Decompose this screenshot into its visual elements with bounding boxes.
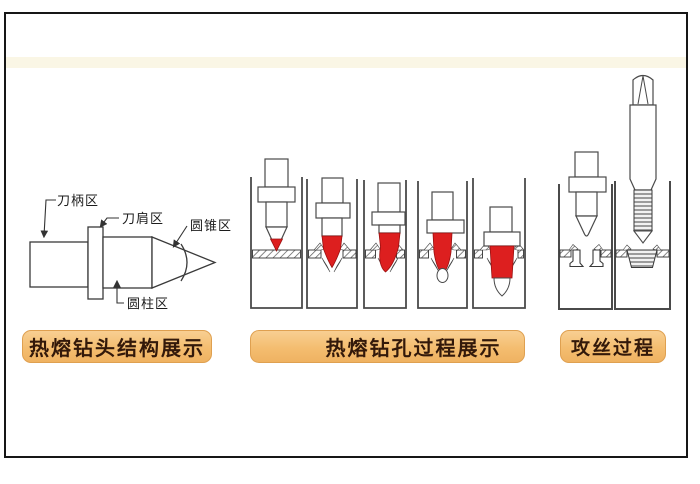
tap1-bushing-lips — [569, 245, 603, 251]
tap2-bushing-lips — [623, 245, 661, 250]
tap2-tap-tool — [630, 76, 656, 244]
tap1-plate-left — [560, 250, 571, 257]
drilling-stage-5 — [473, 178, 525, 308]
stage5-hot-body — [490, 246, 514, 278]
drilling-stage-3 — [364, 180, 406, 308]
stage3-hot-cone — [379, 233, 400, 272]
tap1-plate-right — [601, 250, 611, 257]
stage4-plate-right — [457, 250, 466, 258]
stage3-plate-left — [366, 250, 376, 258]
tap-head — [633, 76, 653, 106]
stage4-drill — [427, 192, 464, 233]
stage4-plate-left — [420, 250, 429, 258]
callout-line-shoulder — [101, 218, 119, 226]
caption-drilling-process: 热熔钻孔过程展示 — [250, 330, 525, 363]
tap1-bushing — [570, 250, 603, 267]
stage2-plate-left — [309, 250, 322, 258]
tap2-plate-left — [616, 250, 627, 257]
caption-tapping-process: 攻丝过程 — [560, 330, 666, 363]
cylinder-area-shape — [103, 237, 152, 288]
drilling-stage-1 — [251, 159, 302, 308]
tap2-threaded-bushing — [627, 250, 657, 268]
label-cylinder-area: 圆柱区 — [127, 297, 169, 312]
shoulder-flange-shape — [88, 227, 103, 299]
caption-drill-structure: 热熔钻头结构展示 — [22, 330, 212, 363]
stage5-cool-tip — [494, 278, 510, 296]
tap1-drill — [569, 152, 606, 236]
shank-area-shape — [30, 242, 88, 287]
tap-threads — [634, 190, 652, 231]
stage3-drill — [372, 183, 405, 233]
callout-line-cone — [174, 226, 187, 246]
stage1-drill — [258, 159, 295, 250]
stage1-hot-tip — [271, 239, 283, 251]
stage5-drill — [484, 207, 520, 246]
diagram-artwork: 刀柄区 刀肩区 圆锥区 圆柱区 — [0, 0, 700, 484]
drill-structure-diagram — [30, 227, 215, 299]
callout-line-shank — [44, 200, 56, 236]
stage5-plate-left — [475, 250, 483, 258]
tap2-plate-right — [657, 250, 669, 257]
stage2-plate-right — [343, 250, 356, 258]
drilling-stage-2 — [307, 178, 357, 308]
tapping-stage-2 — [615, 76, 670, 310]
drilling-stage-4 — [418, 181, 467, 308]
label-shank-area: 刀柄区 — [57, 194, 99, 209]
stage2-drill — [316, 178, 350, 236]
stage5-plate-right — [518, 250, 524, 258]
flow-drill-diagram: 刀柄区 刀肩区 圆锥区 圆柱区 — [0, 0, 700, 484]
tap-shank — [630, 105, 656, 190]
label-cone-area: 圆锥区 — [190, 219, 232, 234]
cone-area-shape — [152, 237, 215, 288]
tapping-stage-1 — [559, 152, 612, 309]
tap-chamfer-tip — [634, 231, 652, 243]
stage4-cool-tip — [437, 269, 448, 283]
label-shoulder-area: 刀肩区 — [122, 211, 164, 227]
